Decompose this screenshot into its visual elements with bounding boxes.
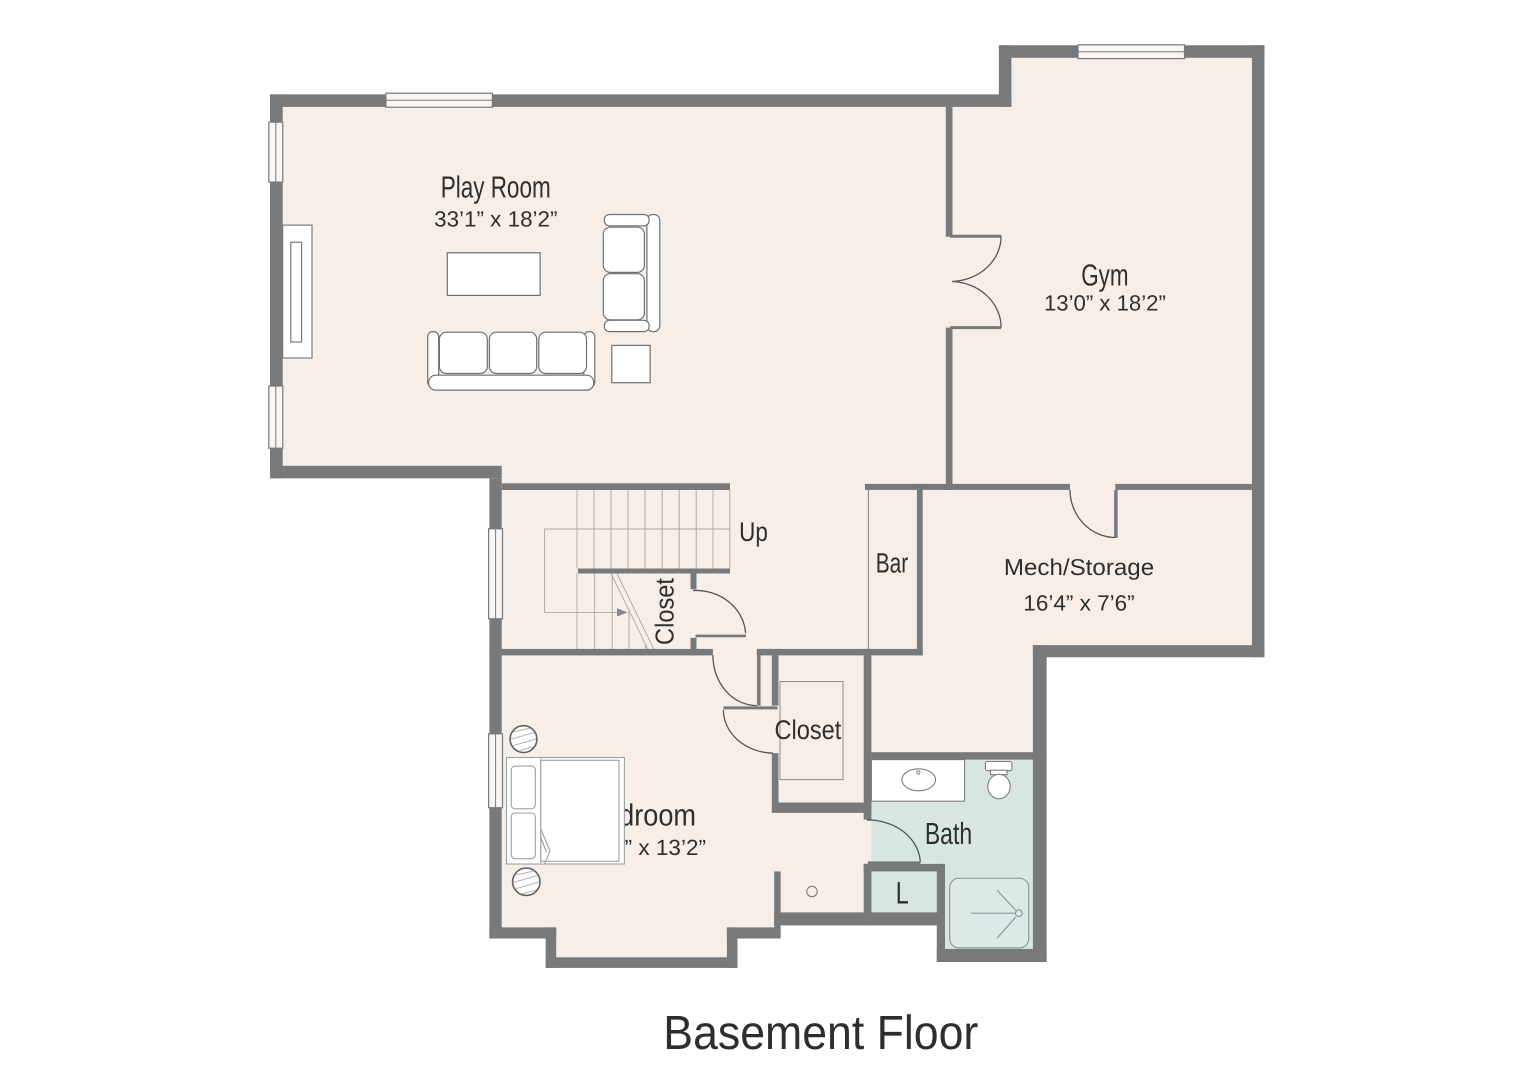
svg-text:13’0” x 18’2”: 13’0” x 18’2” <box>1044 291 1166 316</box>
svg-text:Bar: Bar <box>876 548 909 579</box>
svg-text:Up: Up <box>739 517 768 547</box>
svg-text:Gym: Gym <box>1081 258 1128 292</box>
svg-text:Play Room: Play Room <box>441 170 551 204</box>
svg-text:Mech/Storage: Mech/Storage <box>1004 554 1154 580</box>
svg-text:Closet: Closet <box>774 715 841 745</box>
svg-text:16’4” x 7’6”: 16’4” x 7’6” <box>1023 591 1134 616</box>
svg-text:33’1” x 18’2”: 33’1” x 18’2” <box>434 207 557 232</box>
svg-text:Basement Floor: Basement Floor <box>663 1007 978 1060</box>
svg-text:Closet: Closet <box>649 577 679 645</box>
svg-text:L: L <box>896 876 909 911</box>
svg-text:Bath: Bath <box>925 817 972 851</box>
